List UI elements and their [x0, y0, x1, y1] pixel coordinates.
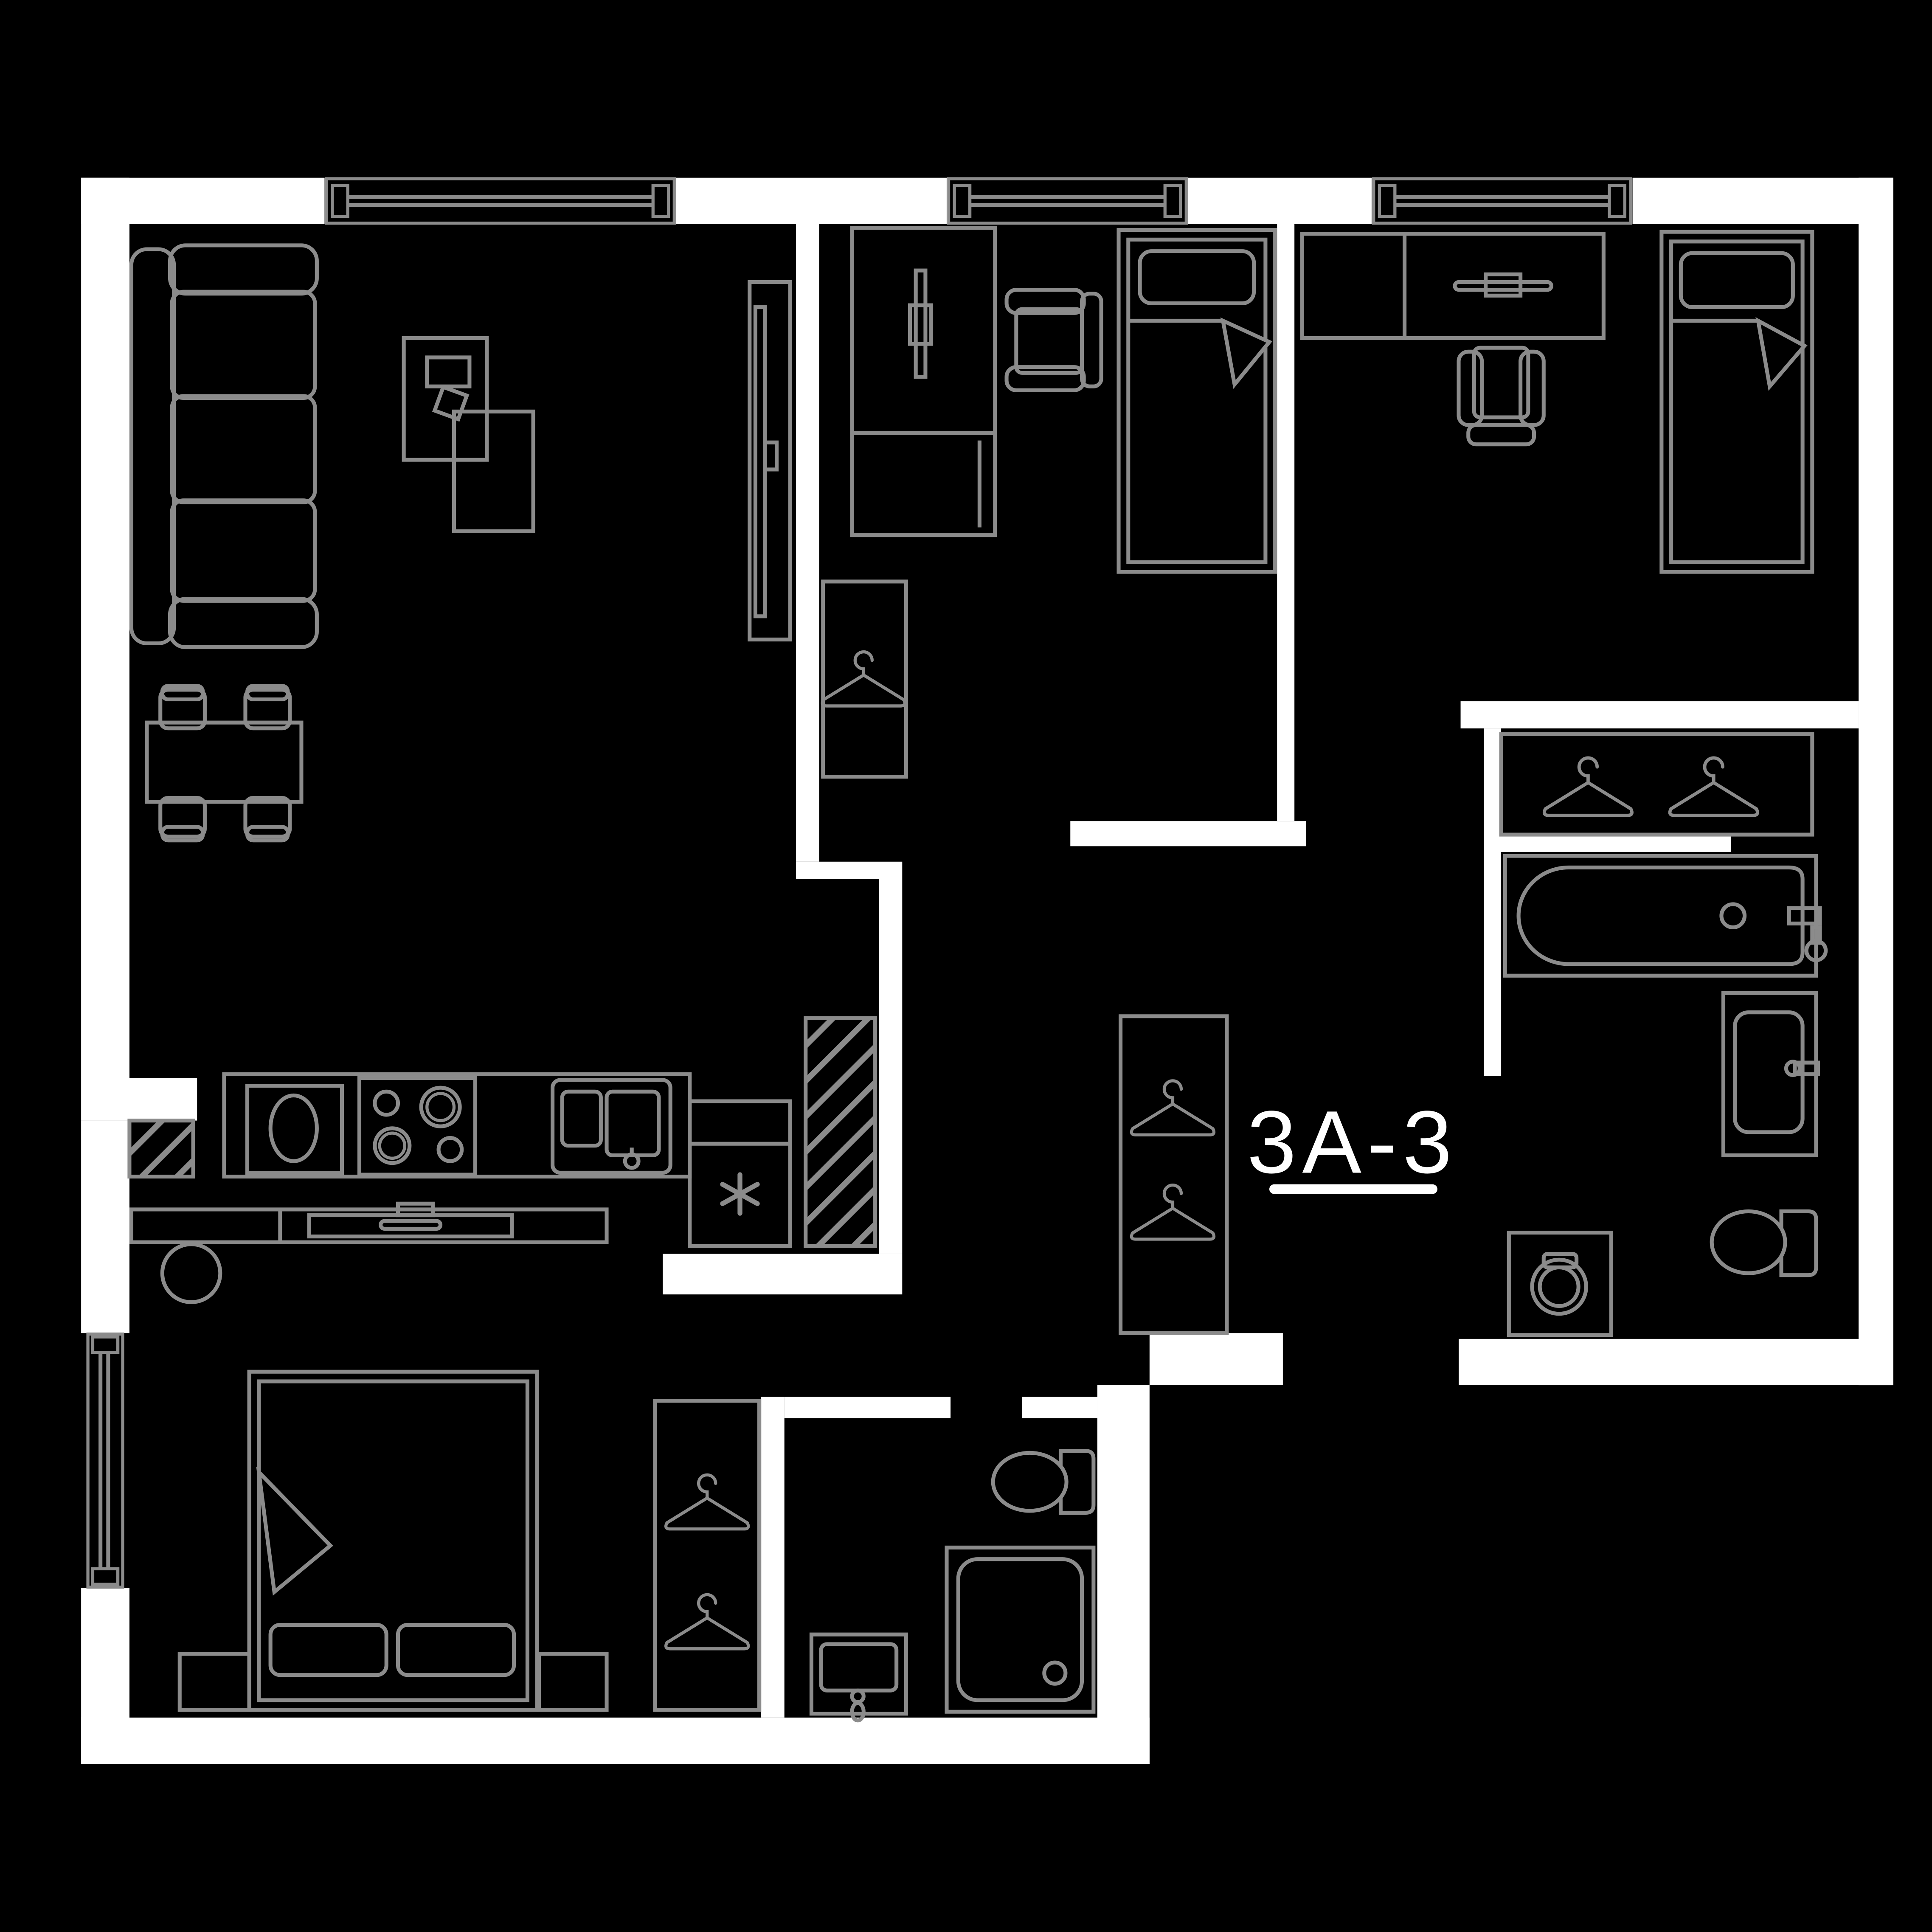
wall-jog: [796, 862, 902, 879]
wall-dressing-bath: [1484, 835, 1731, 852]
floor-plan-canvas: 3A-3: [0, 0, 1932, 1932]
wall-entrance-stub: [1150, 1333, 1283, 1385]
floor-plan: 3A-3: [0, 0, 1932, 1932]
windows: [88, 179, 1631, 1587]
wall-left-b: [81, 1121, 129, 1333]
wall-bath2-top-b: [1022, 1397, 1097, 1418]
wardrobe-hanger-icon: [822, 582, 906, 777]
single-bed-icon: [1119, 230, 1275, 572]
coffee-table-icon: [404, 338, 487, 460]
wall-living-bed2: [796, 224, 819, 862]
hallway: 3A-3: [1121, 1016, 1458, 1333]
hanger-icon: [1670, 758, 1758, 815]
bedroom-main: [180, 1372, 759, 1710]
toilet-icon: [993, 1451, 1094, 1513]
wall-right: [1859, 178, 1893, 1385]
desk-icon: [852, 228, 995, 535]
wall-top-c: [1188, 178, 1372, 224]
nightstand-icon: [539, 1654, 607, 1710]
wall-bed1-bath2: [761, 1397, 785, 1717]
bedroom-middle: [822, 228, 1275, 776]
wardrobe-hanger-icon: [1501, 734, 1812, 835]
wall-hall-left: [879, 879, 903, 1254]
kitchen-sink-icon: [553, 1080, 671, 1173]
bathtub-icon: [1505, 856, 1825, 976]
single-bed-icon: [1662, 232, 1812, 572]
bathroom-sink-icon: [811, 1634, 906, 1721]
fridge-snowflake-icon: [690, 1101, 790, 1246]
duct-hatch-small-icon: [129, 1121, 193, 1177]
bathroom-bottom: [811, 1451, 1093, 1721]
hanger-icon: [666, 1475, 748, 1529]
hanger-icon: [1544, 758, 1632, 815]
wall-kitchen-bed1: [663, 1254, 902, 1295]
wall-top-b: [676, 178, 947, 224]
wardrobe-hanger-icon: [655, 1400, 759, 1710]
lamp-icon: [162, 1244, 220, 1302]
balcony-door-niche: [81, 1078, 197, 1120]
living-room: [131, 245, 790, 841]
wall-bath2-top-a: [785, 1397, 951, 1418]
desk-icon: [1302, 234, 1603, 338]
wall-bed2-bed3: [1277, 224, 1294, 821]
wall-hall-bathright: [1484, 728, 1501, 1076]
vanity-sink-icon: [1723, 993, 1818, 1155]
window-icon: [949, 179, 1187, 223]
tv-panel-icon: [750, 282, 790, 639]
wall-bathright-bottom: [1459, 1339, 1893, 1385]
cooktop-icon: [359, 1078, 475, 1175]
wall-bath2-right: [1097, 1385, 1150, 1764]
hanger-icon: [822, 652, 905, 706]
wall-bed3-bottom: [1461, 701, 1859, 728]
window-icon: [326, 179, 674, 223]
wall-top-d: [1633, 178, 1893, 224]
desk-chair-icon: [1459, 348, 1544, 444]
walls: [81, 178, 1893, 1764]
sideboard-icon: [131, 1204, 607, 1242]
window-icon: [1374, 179, 1631, 223]
kitchen-sink-small-icon: [247, 1086, 342, 1173]
wall-bottom: [81, 1718, 1150, 1764]
dining-chair-icon: [160, 686, 290, 841]
desk-chair-icon: [1007, 290, 1101, 391]
washing-machine-icon: [1509, 1233, 1611, 1335]
hanger-icon: [666, 1595, 748, 1648]
dressing-area: [1501, 734, 1812, 835]
toilet-icon: [1712, 1211, 1816, 1275]
shower-icon: [947, 1547, 1094, 1712]
hanger-icon: [1131, 1185, 1214, 1239]
dining-table-icon: [147, 723, 301, 802]
hanger-icon: [1131, 1081, 1214, 1135]
snowflake-icon: [723, 1175, 757, 1213]
sofa-icon: [131, 245, 317, 647]
wall-bed2-bottom: [1070, 821, 1306, 846]
nightstand-icon: [180, 1654, 249, 1710]
double-bed-icon: [249, 1372, 537, 1710]
window-icon: [88, 1334, 123, 1587]
side-table-icon: [454, 411, 533, 531]
unit-label-underline: [1269, 1184, 1437, 1194]
duct-hatch-icon: [806, 1018, 875, 1246]
wall-left-a: [81, 178, 129, 1078]
bathroom-right: [1505, 856, 1825, 1335]
unit-label: 3A-3: [1247, 1092, 1458, 1192]
hall-closet-icon: [1121, 1016, 1227, 1333]
bedroom-right: [1302, 232, 1812, 572]
